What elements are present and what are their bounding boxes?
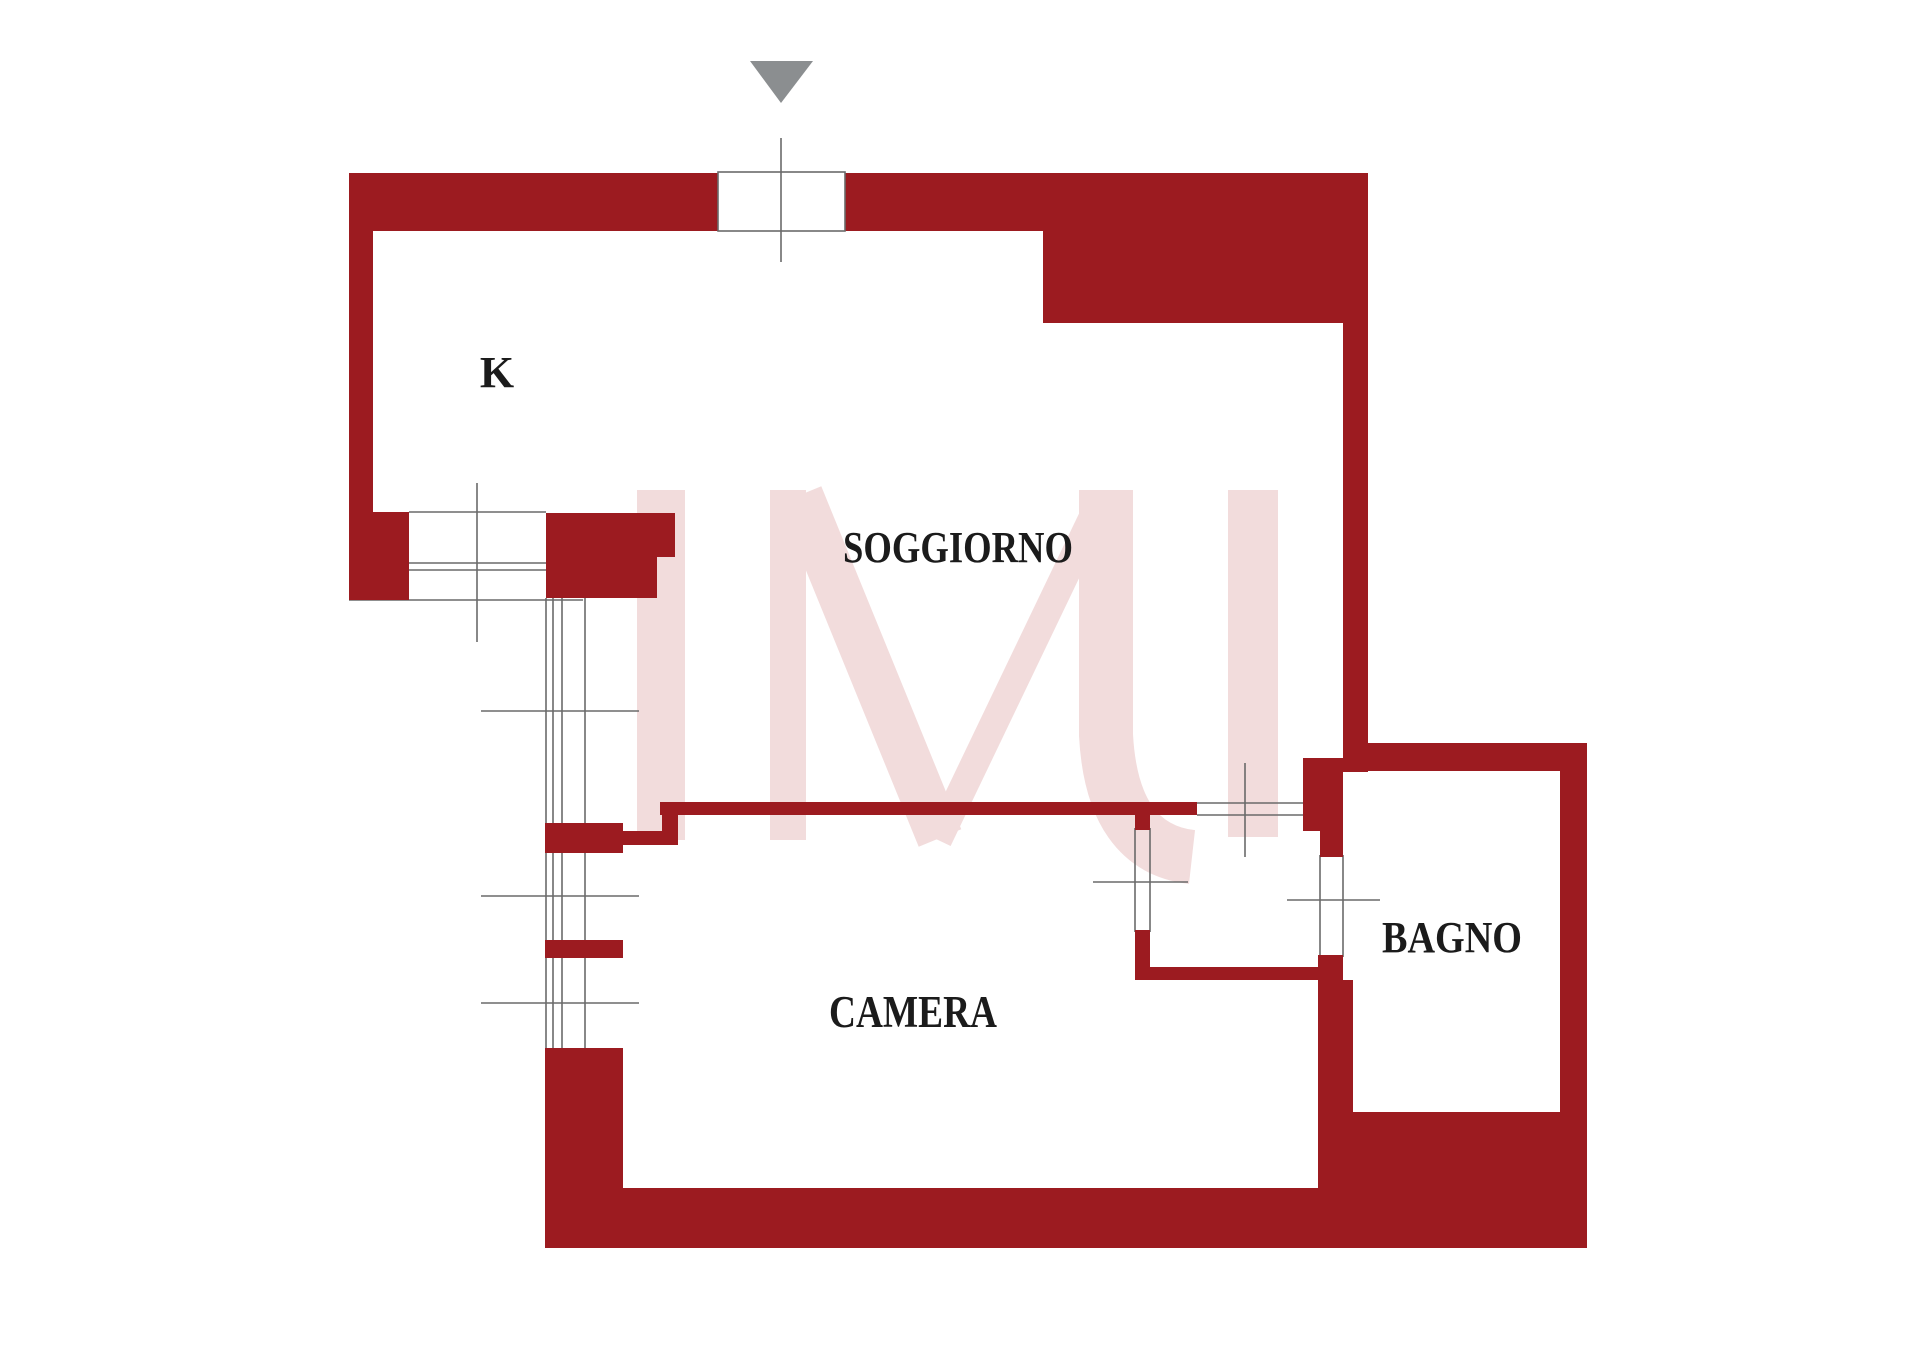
wall-partition-main: [660, 802, 1197, 815]
wall-right: [1343, 323, 1368, 772]
room-label-soggiorno: SOGGIORNO: [843, 523, 1073, 572]
wall-window-chunk-1: [545, 823, 623, 853]
wall-anteroom-bottom: [1135, 967, 1318, 980]
watermark-letter-i2: [1228, 490, 1278, 837]
wall-partition-elbow-h: [623, 831, 678, 845]
room-label-camera: CAMERA: [829, 987, 997, 1037]
wall-bagno-left-step: [1320, 831, 1343, 857]
floor-plan-drawing: K SOGGIORNO CAMERA BAGNO: [0, 0, 1920, 1357]
wall-bottom: [623, 1188, 1318, 1248]
wall-kitchen-stub-a: [546, 513, 675, 557]
wall-window-chunk-2: [545, 940, 623, 958]
wall-bagno-top: [1343, 743, 1587, 771]
watermark-m-right-stem-swash: [1106, 490, 1192, 857]
wall-camera-right-top: [1135, 815, 1150, 830]
room-label-kitchen: K: [480, 348, 514, 397]
wall-bagno-left-band: [1318, 980, 1353, 1248]
wall-left-pier: [349, 512, 409, 600]
entrance-arrow-icon: [750, 61, 813, 103]
wall-left-bottom-bar: [545, 1048, 623, 1248]
wall-top-mid: [845, 173, 1043, 231]
wall-top-left: [349, 173, 718, 231]
wall-bagno-left-lower: [1318, 955, 1343, 982]
floor-plan-canvas: K SOGGIORNO CAMERA BAGNO: [0, 0, 1920, 1357]
wall-bagno-left-upper: [1303, 758, 1343, 831]
room-label-bagno: BAGNO: [1382, 913, 1522, 962]
wall-kitchen-stub-b: [546, 557, 657, 598]
entrance: [718, 61, 845, 262]
wall-bagno-bottom-block: [1353, 1112, 1587, 1248]
wall-left: [349, 173, 373, 512]
wall-top-right-block: [1043, 173, 1368, 323]
